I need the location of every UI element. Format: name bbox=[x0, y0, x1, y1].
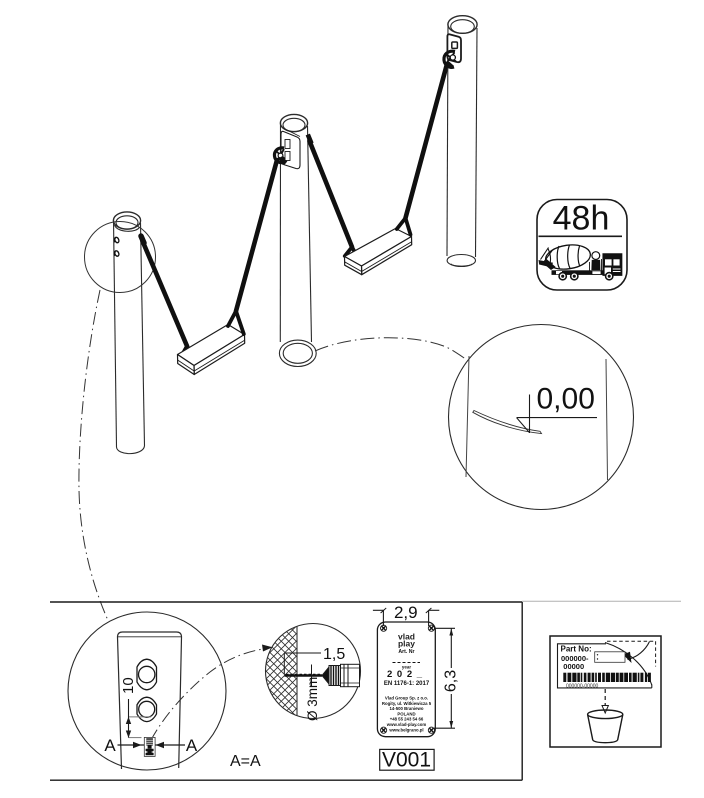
svg-text:A: A bbox=[104, 736, 116, 755]
svg-text:00000: 00000 bbox=[563, 662, 584, 671]
svg-text:14-500 Braniewo: 14-500 Braniewo bbox=[390, 706, 424, 711]
svg-text:10: 10 bbox=[120, 677, 137, 694]
svg-text:0,00: 0,00 bbox=[537, 383, 595, 416]
svg-text:Rogity, ul. Witkiewicza 5: Rogity, ul. Witkiewicza 5 bbox=[382, 701, 432, 706]
svg-text:POLAND: POLAND bbox=[397, 711, 415, 716]
svg-text:48h: 48h bbox=[553, 200, 610, 238]
svg-text:play: play bbox=[398, 639, 415, 649]
svg-text:V001: V001 bbox=[382, 749, 431, 772]
svg-text:Art. Nr: Art. Nr bbox=[398, 649, 414, 655]
svg-text:EN 1176-1: 2017: EN 1176-1: 2017 bbox=[384, 681, 430, 687]
svg-text:+48 55 243 54 66: +48 55 243 54 66 bbox=[390, 717, 424, 722]
svg-text:www.belgrano.pl: www.belgrano.pl bbox=[388, 727, 423, 732]
svg-text:1,5: 1,5 bbox=[323, 646, 345, 663]
svg-text:2,9: 2,9 bbox=[394, 603, 418, 622]
svg-text:6,3: 6,3 bbox=[442, 670, 459, 692]
svg-text:A: A bbox=[186, 736, 198, 755]
svg-text:Part No:: Part No: bbox=[561, 645, 592, 654]
svg-text:www.vlad-play.com: www.vlad-play.com bbox=[386, 722, 427, 727]
svg-text:Vlad Group Sp. z o.o.: Vlad Group Sp. z o.o. bbox=[385, 696, 428, 701]
svg-text:Ø 3mm: Ø 3mm bbox=[305, 677, 320, 721]
svg-text:000000-00000: 000000-00000 bbox=[566, 684, 598, 690]
svg-text:2 0 2 _: 2 0 2 _ bbox=[387, 669, 423, 680]
svg-text:A=A: A=A bbox=[230, 753, 261, 770]
